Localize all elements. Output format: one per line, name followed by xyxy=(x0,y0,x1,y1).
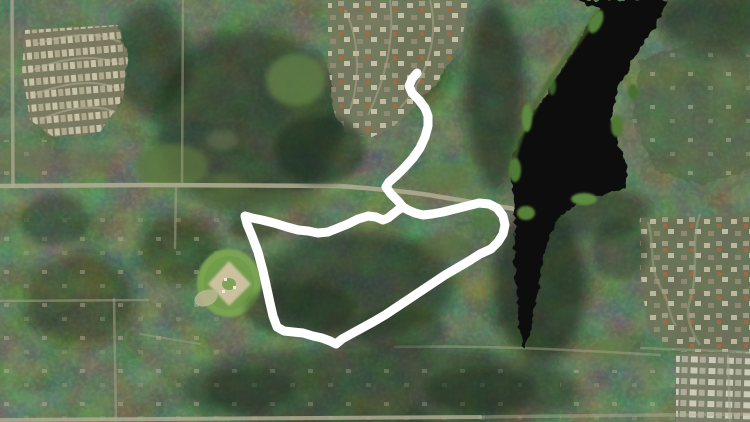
left-road xyxy=(12,0,13,186)
map-canvas xyxy=(0,0,750,422)
satellite-map[interactable] xyxy=(0,0,750,422)
